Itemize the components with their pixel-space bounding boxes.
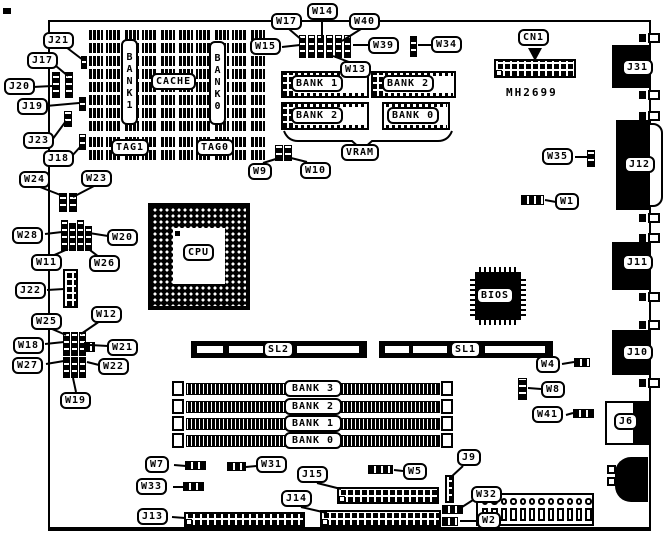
memory-bank3-label: BANK 3 bbox=[284, 380, 342, 397]
connector-label-j6: J6 bbox=[614, 413, 638, 430]
jumper-label-w32: W32 bbox=[471, 486, 502, 503]
jumper-label-w33: W33 bbox=[136, 478, 167, 495]
connector-label-j21: J21 bbox=[43, 32, 74, 49]
connector-label-j18: J18 bbox=[43, 150, 74, 167]
cache-label: CACHE bbox=[151, 73, 196, 90]
jumper-label-w40: W40 bbox=[349, 13, 380, 30]
connector-label-j13: J13 bbox=[137, 508, 168, 525]
jumper-label-w28: W28 bbox=[12, 227, 43, 244]
connector-label-j31: J31 bbox=[622, 59, 653, 76]
connector-label-j20: J20 bbox=[4, 78, 35, 95]
vram-bank2-top-label: BANK 2 bbox=[382, 75, 434, 92]
jumper-label-w39: W39 bbox=[368, 37, 399, 54]
jumper-label-w31: W31 bbox=[256, 456, 287, 473]
memory-bank0-label: BANK 0 bbox=[284, 432, 342, 449]
jumper-label-w35: W35 bbox=[542, 148, 573, 165]
jumper-label-w27: W27 bbox=[12, 357, 43, 374]
jumper-label-w9: W9 bbox=[248, 163, 272, 180]
memory-bank2-label: BANK 2 bbox=[284, 398, 342, 415]
jumper-label-w18: W18 bbox=[13, 337, 44, 354]
cn1-arrow bbox=[528, 48, 542, 61]
memory-bank1-label: BANK 1 bbox=[284, 415, 342, 432]
vram-bank0-label: BANK 0 bbox=[387, 107, 439, 124]
jumper-label-w5: W5 bbox=[403, 463, 427, 480]
jumper-label-w4: W4 bbox=[536, 356, 560, 373]
jumper-label-w1: W1 bbox=[555, 193, 579, 210]
jumper-label-w8: W8 bbox=[541, 381, 565, 398]
connector-label-j11: J11 bbox=[622, 254, 653, 271]
jumper-label-w2: W2 bbox=[477, 512, 501, 529]
vram-bank2-bottom-label: BANK 2 bbox=[291, 107, 343, 124]
jumper-label-w25: W25 bbox=[31, 313, 62, 330]
jumper-label-w15: W15 bbox=[250, 38, 281, 55]
jumper-label-w22: W22 bbox=[98, 358, 129, 375]
vram-bank1-label: BANK 1 bbox=[291, 75, 343, 92]
jumper-label-w17: W17 bbox=[271, 13, 302, 30]
jumper-label-w10: W10 bbox=[300, 162, 331, 179]
connector-label-j22: J22 bbox=[15, 282, 46, 299]
jumper-label-w24: W24 bbox=[19, 171, 50, 188]
jumper-label-w21: W21 bbox=[107, 339, 138, 356]
jumper-label-w7: W7 bbox=[145, 456, 169, 473]
connector-label-j19: J19 bbox=[17, 98, 48, 115]
jumper-label-w11: W11 bbox=[31, 254, 62, 271]
bios-label: BIOS bbox=[476, 287, 514, 304]
connector-label-j23: J23 bbox=[23, 132, 54, 149]
connector-label-j10: J10 bbox=[622, 344, 653, 361]
jumper-label-w26: W26 bbox=[89, 255, 120, 272]
jumper-label-w23: W23 bbox=[81, 170, 112, 187]
motherboard-diagram: BANK1 BANK0 CACHE TAG1 TAG0 BANK 1 BANK … bbox=[0, 0, 664, 537]
jumper-label-w41: W41 bbox=[532, 406, 563, 423]
tag1-label: TAG1 bbox=[111, 139, 149, 156]
connector-label-j14: J14 bbox=[281, 490, 312, 507]
part-number: MH2699 bbox=[506, 86, 558, 99]
jumper-label-w13: W13 bbox=[340, 61, 371, 78]
connector-label-j9: J9 bbox=[457, 449, 481, 466]
cache-bank1-label: BANK1 bbox=[121, 39, 138, 125]
cpu-label: CPU bbox=[183, 244, 214, 261]
jumper-label-w20: W20 bbox=[107, 229, 138, 246]
sl1-label: SL1 bbox=[450, 341, 481, 358]
sl2-label: SL2 bbox=[263, 341, 294, 358]
connector-label-j15: J15 bbox=[297, 466, 328, 483]
vram-caption: VRAM bbox=[341, 144, 379, 161]
connector-label-j12: J12 bbox=[624, 156, 655, 173]
connector-label-j17: J17 bbox=[27, 52, 58, 69]
tag0-label: TAG0 bbox=[196, 139, 234, 156]
jumper-label-w19: W19 bbox=[60, 392, 91, 409]
jumper-label-w14: W14 bbox=[307, 3, 338, 20]
jumper-label-w34: W34 bbox=[431, 36, 462, 53]
jumper-label-w12: W12 bbox=[91, 306, 122, 323]
cache-bank0-label: BANK0 bbox=[209, 41, 226, 125]
connector-label-cn1: CN1 bbox=[518, 29, 549, 46]
